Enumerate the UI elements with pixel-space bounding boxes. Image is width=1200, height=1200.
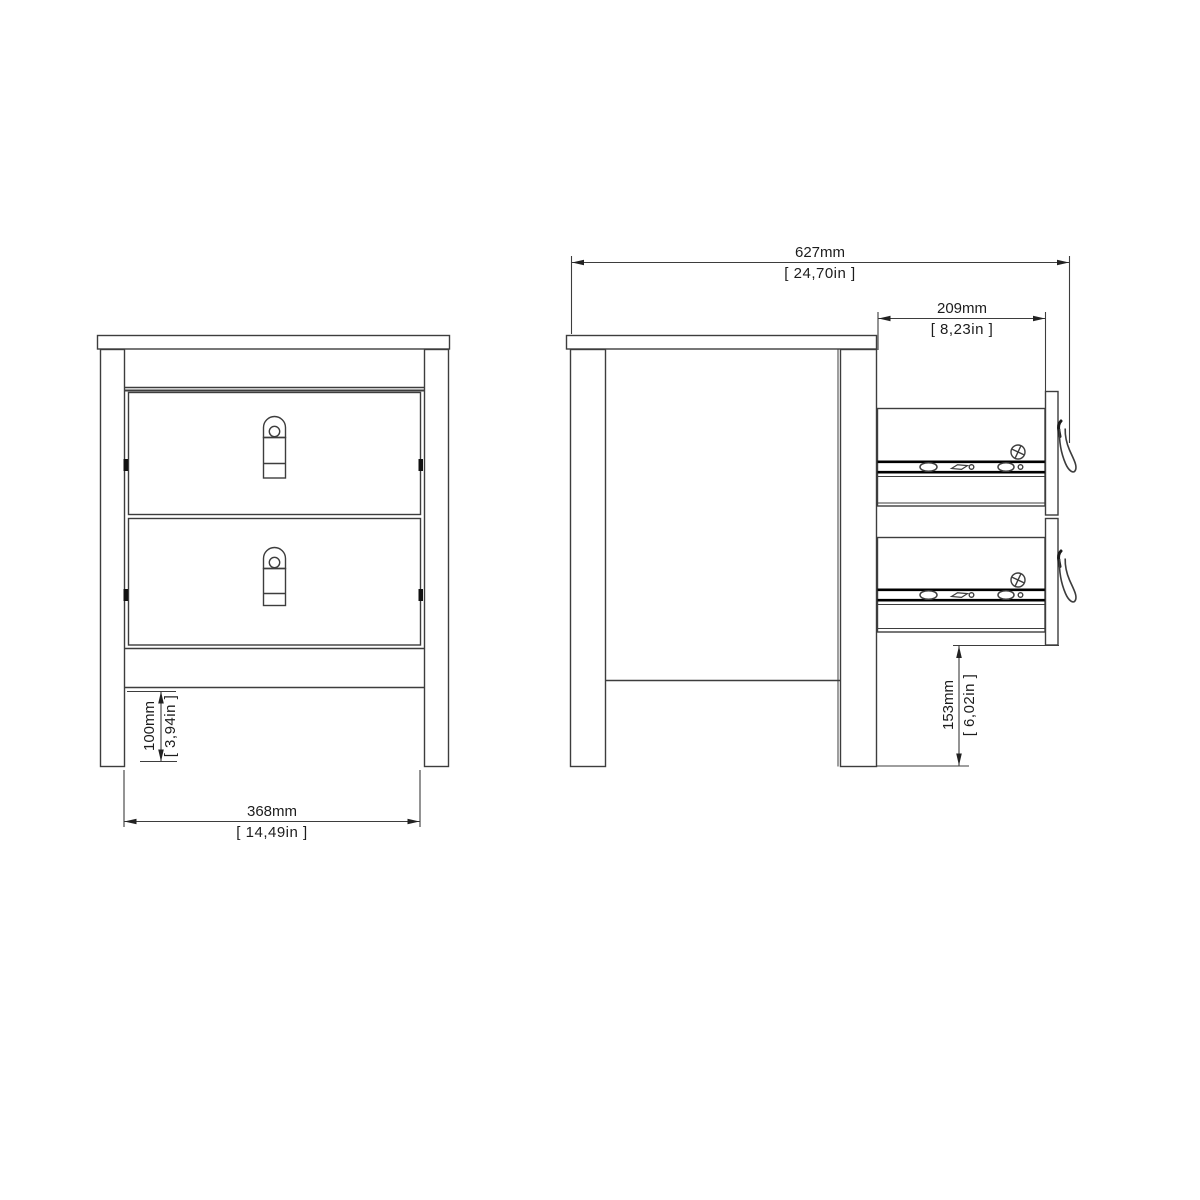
runner-tick-icon: [124, 589, 129, 601]
drawer-slide-rail: [878, 462, 1046, 472]
drawer-runner-ticks: [124, 459, 424, 601]
technical-drawing-canvas: 627mm [ 24,70in ] 209mm [ 8,23in ] 368mm…: [0, 0, 1200, 1200]
side-front-leg: [841, 350, 877, 767]
upper-drawer-front-panel: [1046, 392, 1059, 516]
dim-drawer-depth-group: [878, 312, 1046, 391]
runner-tick-icon: [419, 589, 424, 601]
runner-tick-icon: [124, 459, 129, 471]
upper-drawer-box: [878, 409, 1046, 507]
front-right-leg: [425, 350, 449, 767]
strap-handle-front-icon: [264, 417, 286, 479]
arrow-down-icon: [956, 754, 962, 766]
lower-drawer-front-panel: [1046, 519, 1059, 646]
arrow-up-icon: [158, 692, 164, 704]
strap-handle-side-icon: [1059, 421, 1076, 472]
arrow-right-icon: [408, 819, 420, 825]
lower-drawer-box: [878, 538, 1046, 633]
phillips-screw-icon: [1009, 443, 1026, 460]
furniture-dimension-diagram: [0, 0, 1200, 1200]
front-view: [98, 336, 450, 828]
arrow-right-icon: [1057, 260, 1069, 266]
dim-clearance-group: [877, 646, 1059, 767]
side-tabletop: [567, 336, 877, 350]
arrow-left-icon: [572, 260, 584, 266]
drawer-slide-rail: [878, 590, 1046, 600]
strap-handle-front-icon: [264, 548, 286, 606]
front-left-leg: [101, 350, 125, 767]
runner-tick-icon: [419, 459, 424, 471]
side-back-leg: [571, 350, 606, 767]
side-upper-drawer: [878, 392, 1076, 516]
arrow-right-icon: [1033, 316, 1045, 322]
front-drawer-1: [129, 393, 421, 515]
strap-handle-side-icon: [1059, 551, 1076, 602]
arrow-left-icon: [879, 316, 891, 322]
dim-width-group: [124, 770, 420, 827]
dim-leg-height-group: [127, 692, 177, 762]
front-drawer-2: [129, 519, 421, 646]
arrow-down-icon: [158, 750, 164, 762]
front-tabletop: [98, 336, 450, 350]
arrow-up-icon: [956, 646, 962, 658]
arrow-left-icon: [125, 819, 137, 825]
side-lower-drawer: [878, 519, 1076, 646]
phillips-screw-icon: [1009, 571, 1026, 588]
side-view: [567, 256, 1076, 767]
